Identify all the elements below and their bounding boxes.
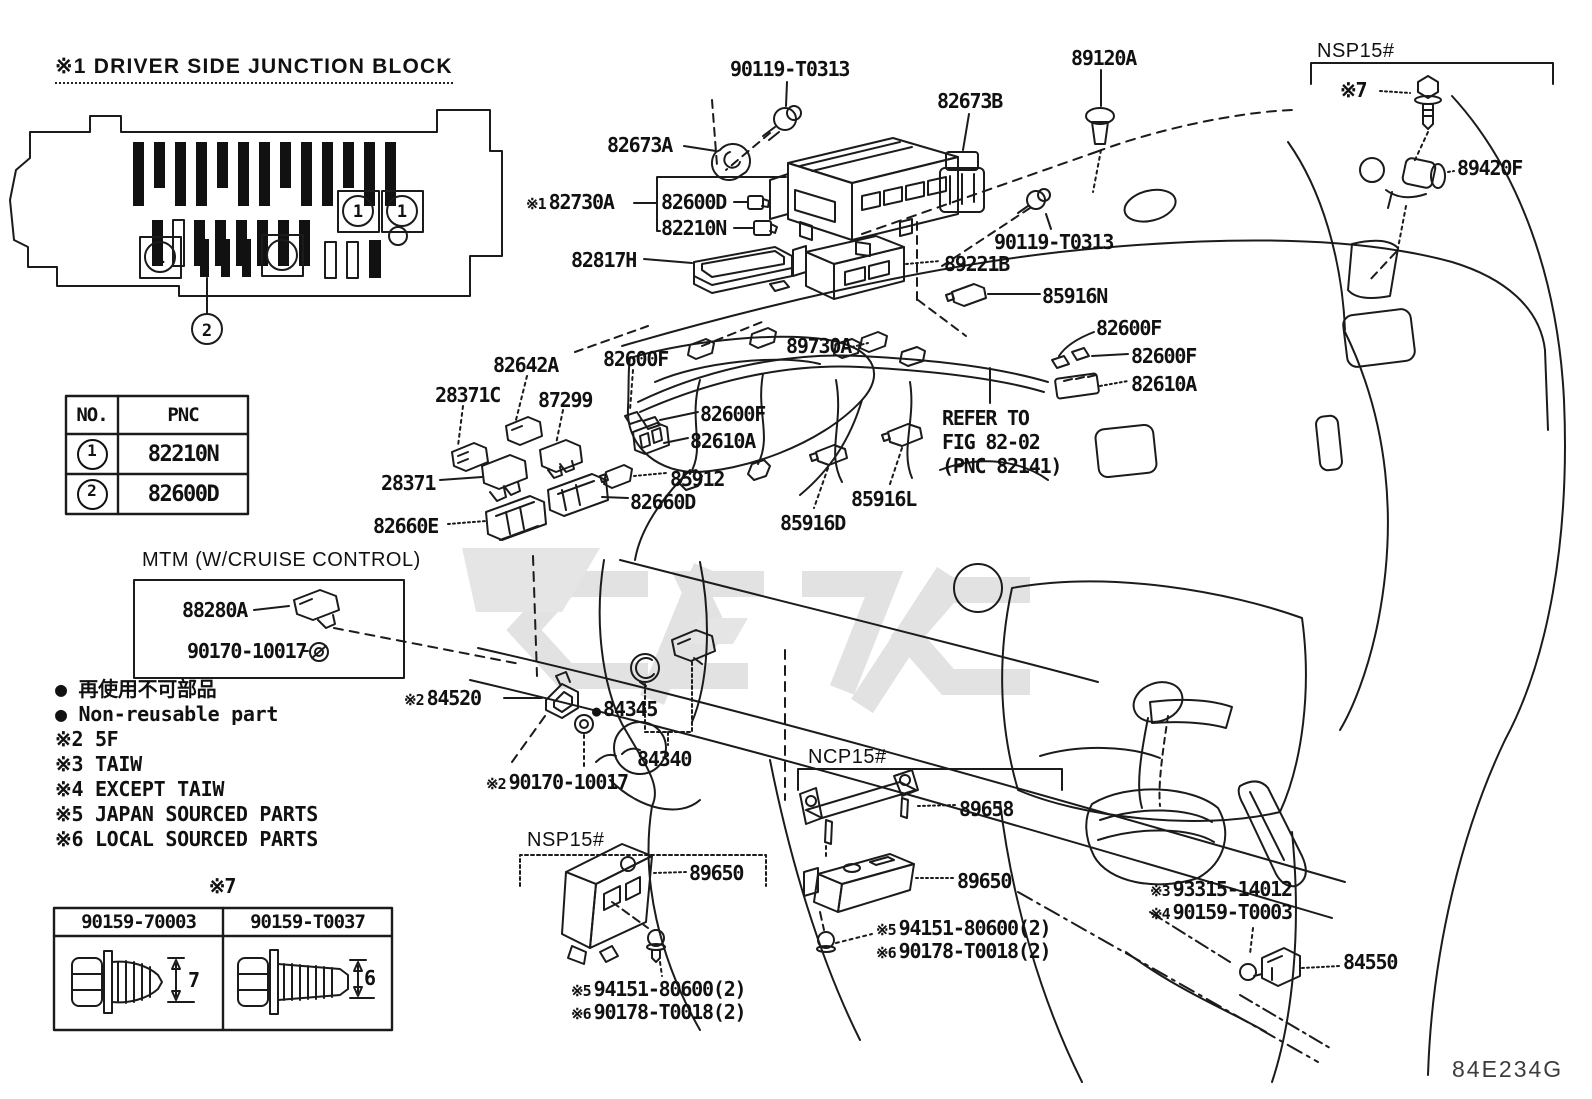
part-label: ※594151-80600(2) [876, 916, 1050, 940]
part-label: 88280A [182, 598, 247, 622]
part-label: 82673B [937, 89, 1002, 113]
part-label: 89221B [944, 252, 1009, 276]
part-label: ※7 [1340, 78, 1366, 102]
part-label: 82600F [700, 402, 765, 426]
watermark-logo [462, 548, 1030, 706]
part-label-prefix: ※4 [1150, 905, 1170, 923]
legend-item: ※4 EXCEPT TAIW [55, 777, 318, 802]
part-label: 82642A [493, 353, 558, 377]
part-label: ※594151-80600(2) [571, 977, 745, 1001]
bolt-part-number: 90159-T0037 [223, 908, 392, 936]
pnc-value: 82600D [118, 474, 248, 514]
part-label: 84550 [1343, 950, 1397, 974]
clip-cluster-right [1052, 332, 1128, 399]
part-label: 82600F [603, 347, 668, 371]
part-label: 82210N [661, 216, 726, 240]
part-label: 89730A [786, 334, 851, 358]
part-label-prefix: ※5 [571, 982, 591, 1000]
part-label-prefix: ※6 [571, 1005, 591, 1023]
part-label-prefix: ※3 [1150, 882, 1170, 900]
pnc-table-header-no: NO. [66, 396, 118, 434]
mtm-cruise-box [134, 580, 520, 678]
legend-item: ※5 JAPAN SOURCED PARTS [55, 802, 318, 827]
callout-number: 1 [77, 439, 108, 470]
part-label: ※290170-10017 [486, 770, 628, 794]
bolt-table-caption: ※7 [192, 874, 252, 898]
junction-block-drawing [10, 110, 502, 344]
part-label: 82660D [630, 490, 695, 514]
legend-item: ● Non-reusable part [55, 702, 318, 727]
part-label: 90170-10017 [187, 639, 306, 663]
part-label: ※284520 [404, 686, 481, 710]
part-label: 82600F [1096, 316, 1161, 340]
pnc-value: 82210N [118, 434, 248, 474]
part-label: NSP15# [527, 829, 605, 852]
part-label: REFER TO FIG 82-02 (PNC 82141) [942, 406, 1061, 478]
part-label: 82600D [661, 190, 726, 214]
part-label: 87299 [538, 388, 592, 412]
svg-text:2: 2 [202, 321, 212, 341]
part-label: 85916N [1042, 284, 1107, 308]
part-label: ※690178-T0018(2) [571, 1000, 745, 1024]
part-label: 85916D [780, 511, 845, 535]
page-title: ※1 DRIVER SIDE JUNCTION BLOCK [55, 54, 453, 84]
pnc-table-header-pnc: PNC [118, 396, 248, 434]
svg-text:1: 1 [353, 202, 363, 222]
part-label: 84E234G [1452, 1056, 1563, 1083]
part-label: 82610A [1131, 372, 1196, 396]
part-label-prefix: ※2 [404, 691, 424, 709]
sensor-89420f-icon [1121, 157, 1454, 282]
legend-item: ● 再使用不可部品 [55, 677, 318, 702]
part-label: NSP15# [1317, 40, 1395, 63]
part-label: 89420F [1457, 156, 1522, 180]
part-label: 82817H [571, 248, 636, 272]
part-label: 28371 [381, 471, 435, 495]
part-label: 82600F [1131, 344, 1196, 368]
part-label: 90119-T0313 [730, 57, 849, 81]
part-label: ●84345 [592, 697, 657, 721]
part-label: 28371C [435, 383, 500, 407]
part-label: 85916L [851, 487, 916, 511]
sensor-84550-icon [1240, 928, 1340, 986]
connector-82673b-icon [940, 114, 984, 212]
part-label: 85912 [670, 467, 724, 491]
part-label: ※490159-T0003 [1150, 900, 1292, 924]
legend-item: ※3 TAIW [55, 752, 318, 777]
part-label: NCP15# [808, 746, 887, 769]
table-row: 1 [66, 434, 118, 474]
part-label: ※393315-14012 [1150, 877, 1292, 901]
switch-85916n-icon [946, 284, 1040, 306]
tray-82817h-icon [644, 247, 792, 293]
legend-item: ※6 LOCAL SOURCED PARTS [55, 827, 318, 852]
part-label: 89658 [959, 797, 1013, 821]
part-label: 82673A [607, 133, 672, 157]
table-row: 2 [66, 474, 118, 514]
part-label: 90119-T0313 [994, 230, 1113, 254]
clip-89120a-icon [1086, 70, 1114, 192]
part-label-prefix: ※5 [876, 921, 896, 939]
part-label-prefix: ※1 [526, 195, 546, 213]
callout-number: 2 [77, 479, 108, 510]
part-label: 84340 [637, 747, 691, 771]
bolt-part-number: 90159-70003 [54, 908, 223, 936]
bolt-dimension: 6 [364, 966, 376, 990]
part-label: MTM (W/CRUISE CONTROL) [142, 549, 421, 572]
part-label: 82610A [690, 429, 755, 453]
legend-item: ※2 5F [55, 727, 318, 752]
parts-diagram-page: 1 1 1 1 2 ※1 DRIVER SIDE JUNCTION BLOCK … [0, 0, 1592, 1099]
part-label: ※182730A [526, 190, 614, 214]
bolt-dimension: 7 [188, 968, 200, 992]
svg-text:1: 1 [397, 202, 407, 222]
part-label-prefix: ※2 [486, 775, 506, 793]
legend-notes: ● 再使用不可部品● Non-reusable part※2 5F※3 TAIW… [55, 677, 318, 852]
part-label: 89650 [957, 869, 1011, 893]
svg-text:1: 1 [155, 248, 165, 268]
part-label: 89650 [689, 861, 743, 885]
svg-text:1: 1 [277, 246, 287, 266]
part-label: 89120A [1071, 46, 1136, 70]
part-label: ※690178-T0018(2) [876, 939, 1050, 963]
part-label-prefix: ※6 [876, 944, 896, 962]
part-label: 82660E [373, 514, 438, 538]
part-label-prefix: ● [592, 702, 600, 720]
